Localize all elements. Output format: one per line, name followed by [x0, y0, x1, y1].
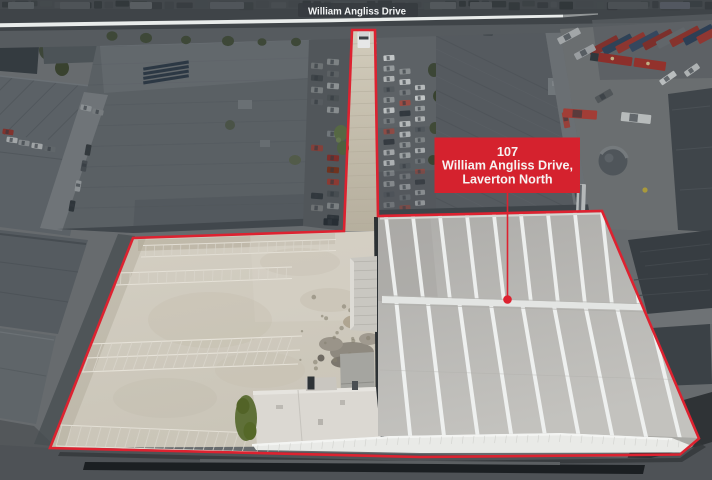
svg-text:William Angliss Drive,: William Angliss Drive, — [442, 159, 573, 173]
svg-text:107: 107 — [497, 144, 518, 159]
svg-text:William Angliss Drive: William Angliss Drive — [308, 7, 407, 18]
svg-text:Laverton North: Laverton North — [462, 172, 552, 186]
